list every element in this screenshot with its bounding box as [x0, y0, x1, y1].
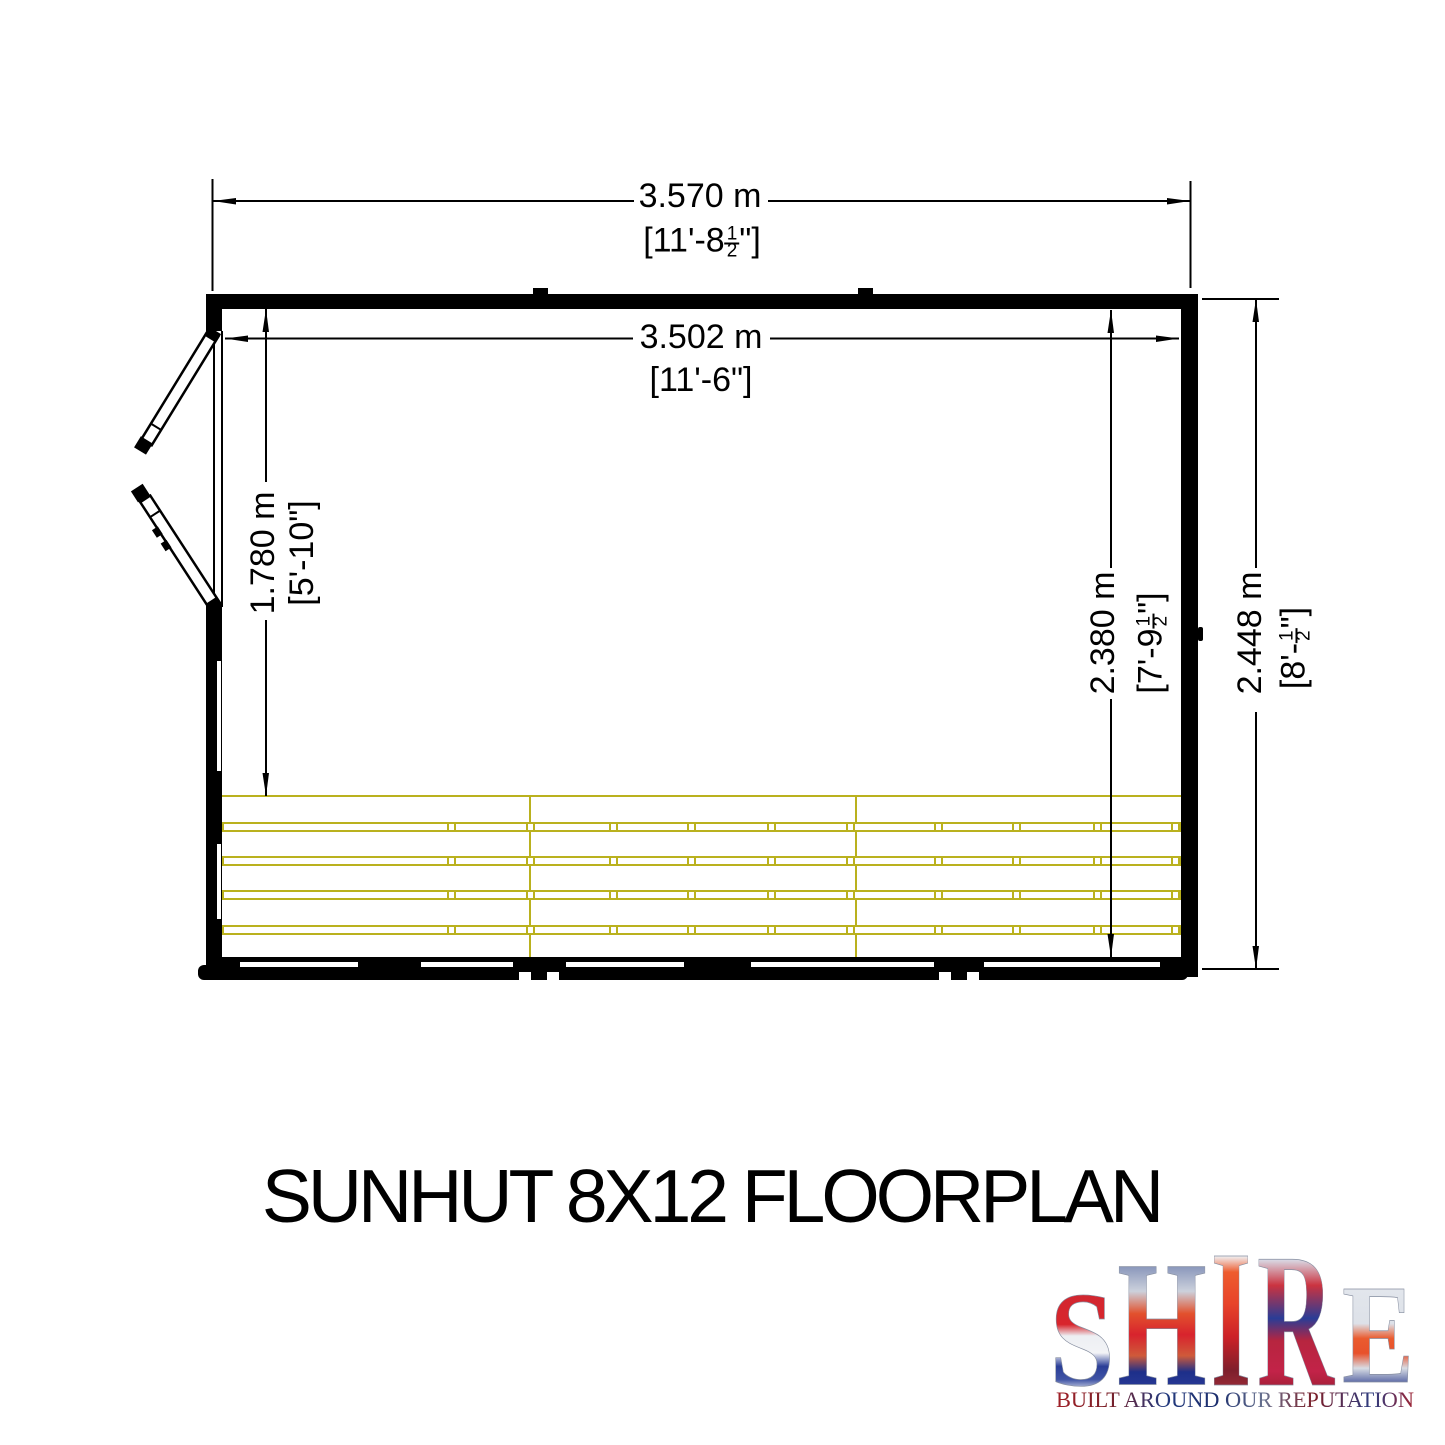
svg-text:BUILT AROUND OUR REPUTATION: BUILT AROUND OUR REPUTATION	[1056, 1387, 1414, 1412]
